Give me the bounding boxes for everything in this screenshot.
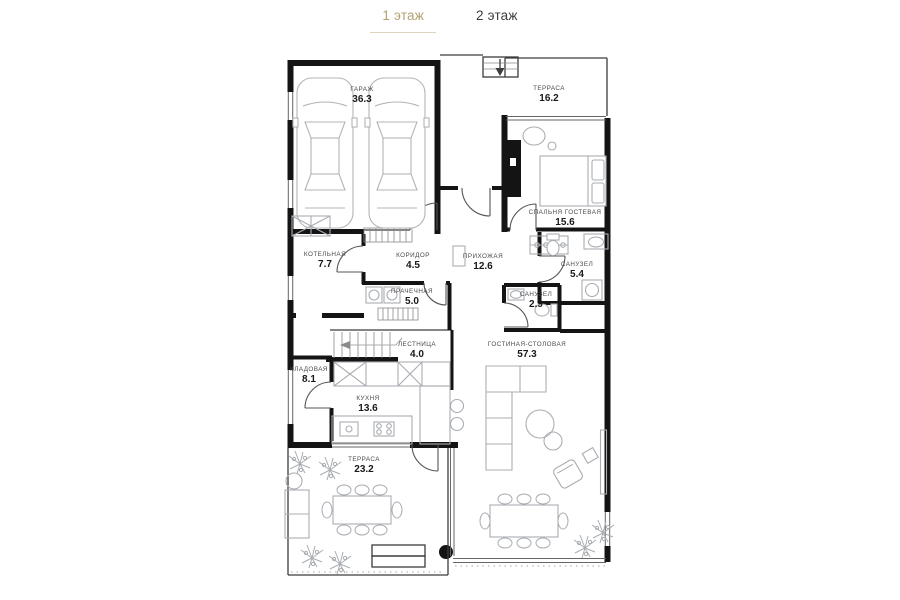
svg-text:4.0: 4.0 xyxy=(410,349,424,360)
svg-text:ПРАЧЕЧНАЯ: ПРАЧЕЧНАЯ xyxy=(391,288,433,295)
svg-text:САНУЗЕЛ: САНУЗЕЛ xyxy=(520,291,552,298)
svg-text:КЛАДОВАЯ: КЛАДОВАЯ xyxy=(290,366,328,373)
svg-text:57.3: 57.3 xyxy=(517,349,537,360)
room-label-garage: ГАРАЖ 36.3 xyxy=(350,86,373,105)
room-label-storage: КЛАДОВАЯ 8.1 xyxy=(290,366,328,385)
svg-text:КУХНЯ: КУХНЯ xyxy=(356,395,379,402)
room-label-laundry: ПРАЧЕЧНАЯ 5.0 xyxy=(391,288,433,307)
svg-text:ПРИХОЖАЯ: ПРИХОЖАЯ xyxy=(463,253,503,260)
svg-text:5.0: 5.0 xyxy=(405,296,419,307)
svg-text:7.7: 7.7 xyxy=(318,259,332,270)
svg-text:СПАЛЬНЯ ГОСТЕВАЯ: СПАЛЬНЯ ГОСТЕВАЯ xyxy=(529,209,602,216)
svg-text:ГОСТИНАЯ-СТОЛОВАЯ: ГОСТИНАЯ-СТОЛОВАЯ xyxy=(488,341,566,348)
svg-text:36.3: 36.3 xyxy=(352,94,372,105)
svg-text:23.2: 23.2 xyxy=(354,464,374,475)
svg-text:16.2: 16.2 xyxy=(539,93,559,104)
floor-plan-viewer: 1 этаж 2 этаж xyxy=(0,0,900,600)
svg-text:5.4: 5.4 xyxy=(570,269,584,280)
svg-text:ЛЕСТНИЦА: ЛЕСТНИЦА xyxy=(398,341,436,348)
svg-text:12.6: 12.6 xyxy=(473,261,493,272)
room-label-guest-bedroom: СПАЛЬНЯ ГОСТЕВАЯ 15.6 xyxy=(529,209,602,228)
svg-text:13.6: 13.6 xyxy=(358,403,378,414)
floor-plan: ГАРАЖ 36.3 ТЕРРАСА 16.2 СПАЛЬНЯ ГОСТЕВАЯ… xyxy=(0,0,900,600)
svg-text:ТЕРРАСА: ТЕРРАСА xyxy=(348,456,380,463)
room-label-terrace-top: ТЕРРАСА 16.2 xyxy=(533,85,565,104)
svg-text:4.5: 4.5 xyxy=(406,260,420,271)
room-label-stairs: ЛЕСТНИЦА 4.0 xyxy=(398,341,436,360)
svg-text:САНУЗЕЛ: САНУЗЕЛ xyxy=(561,261,593,268)
svg-text:ГАРАЖ: ГАРАЖ xyxy=(350,86,373,93)
svg-text:15.6: 15.6 xyxy=(555,217,575,228)
svg-text:КОТЕЛЬНАЯ: КОТЕЛЬНАЯ xyxy=(304,251,346,258)
room-label-terrace-bottom: ТЕРРАСА 23.2 xyxy=(348,456,380,475)
svg-text:2.9: 2.9 xyxy=(529,299,543,310)
room-label-hallway: ПРИХОЖАЯ 12.6 xyxy=(463,253,503,272)
svg-text:ТЕРРАСА: ТЕРРАСА xyxy=(533,85,565,92)
room-label-living-dining: ГОСТИНАЯ-СТОЛОВАЯ 57.3 xyxy=(488,341,566,360)
room-label-bathroom-1: САНУЗЕЛ 5.4 xyxy=(561,261,593,280)
room-label-corridor: КОРИДОР 4.5 xyxy=(396,252,430,271)
svg-text:8.1: 8.1 xyxy=(302,374,316,385)
room-label-kitchen: КУХНЯ 13.6 xyxy=(356,395,379,414)
svg-text:КОРИДОР: КОРИДОР xyxy=(396,252,430,259)
